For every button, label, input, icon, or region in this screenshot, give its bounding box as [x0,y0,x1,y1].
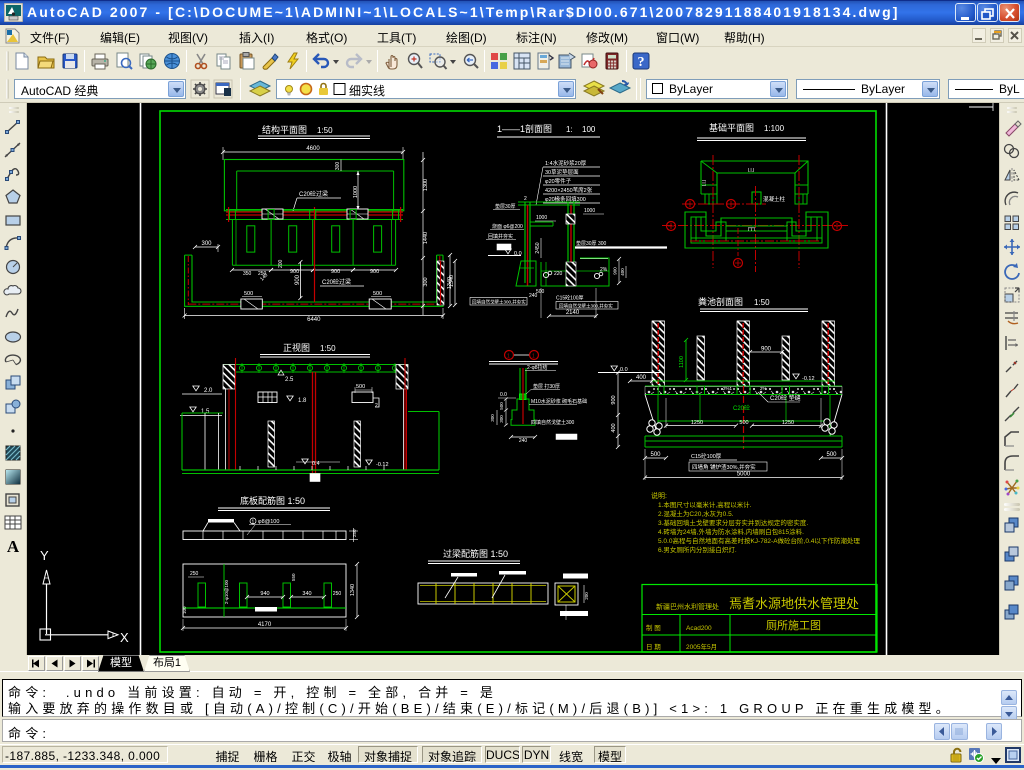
svg-text:M10水泥砂浆 砌毛石基础: M10水泥砂浆 砌毛石基础 [531,398,587,405]
svg-text:900: 900 [295,274,301,285]
svg-text:C20砼过梁: C20砼过梁 [322,278,351,286]
svg-text:100: 100 [582,125,596,134]
svg-text:250: 250 [352,529,357,537]
svg-text:1:: 1: [566,125,573,134]
svg-text:2005年5月: 2005年5月 [686,642,717,651]
svg-text:φ20零件子: φ20零件子 [545,177,572,185]
svg-text:回填自然戈壁土300,并夯实: 回填自然戈壁土300,并夯实 [559,303,613,310]
svg-text:Acad200: Acad200 [686,625,712,632]
svg-text:200: 200 [584,592,589,600]
svg-text:4170: 4170 [258,622,272,628]
svg-text:0.0: 0.0 [500,392,507,398]
svg-text:1:50: 1:50 [317,126,333,135]
svg-text:垫层30厚 300: 垫层30厚 300 [576,240,607,247]
svg-text:350: 350 [243,271,252,277]
svg-text:1.5: 1.5 [201,409,210,415]
svg-text:1000: 1000 [353,186,359,198]
svg-text:Y: Y [40,548,49,563]
svg-text:6440: 6440 [307,317,321,323]
svg-text:1:4水泥砂浆20厚: 1:4水泥砂浆20厚 [545,159,587,167]
svg-text:2.0: 2.0 [204,388,213,394]
svg-text:1300: 1300 [423,179,429,191]
svg-text:240: 240 [529,293,538,299]
svg-text:基础平面图: 基础平面图 [709,122,754,133]
svg-text:0.0: 0.0 [514,251,522,257]
svg-text:900: 900 [290,269,299,275]
svg-text:厕所施工图: 厕所施工图 [766,619,821,632]
svg-text:制 图: 制 图 [646,623,661,632]
svg-text:900: 900 [613,267,618,275]
svg-text:结构平面图: 结构平面图 [262,124,307,135]
svg-text:240: 240 [519,438,528,444]
svg-text:2-φ10@100: 2-φ10@100 [224,580,229,604]
svg-text:-0.12: -0.12 [802,376,815,382]
svg-text:垫层30厚: 垫层30厚 [495,203,516,210]
svg-text:300: 300 [201,241,212,247]
svg-text:900: 900 [370,269,379,275]
svg-text:250: 250 [190,571,199,577]
svg-text:2140: 2140 [566,310,580,316]
svg-text:C20砼: C20砼 [733,404,750,412]
svg-text:4200×2450苇席2张: 4200×2450苇席2张 [545,186,593,194]
svg-text:1440: 1440 [423,232,429,244]
svg-text:A: A [7,537,20,556]
svg-text:四墙角 铺炉渣30%,并夯实: 四墙角 铺炉渣30%,并夯实 [692,463,756,471]
svg-text:100: 100 [182,606,187,614]
svg-text:1: 1 [507,354,510,360]
svg-text:2: 2 [524,196,527,202]
svg-text:6.男女厕所内分别接白炽灯.: 6.男女厕所内分别接白炽灯. [658,545,737,554]
svg-text:500: 500 [499,402,504,410]
svg-text:1100: 1100 [679,356,685,368]
svg-text:300: 300 [423,277,429,286]
svg-text:垫层 打30厚: 垫层 打30厚 [533,383,560,390]
svg-text:1250: 1250 [691,420,703,426]
svg-text:1340: 1340 [447,277,453,289]
svg-text:1:50: 1:50 [754,298,770,307]
svg-text:500: 500 [739,420,748,426]
svg-text:说明:: 说明: [651,491,667,500]
svg-text:300: 300 [335,162,341,171]
svg-text:300: 300 [490,414,495,422]
svg-text:2.5: 2.5 [285,377,294,383]
svg-text:烧面 φ6@200: 烧面 φ6@200 [492,223,523,230]
svg-text:底板配筋图 1:50: 底板配筋图 1:50 [240,495,305,506]
svg-text:1.本图尺寸以毫米计,高程以米计.: 1.本图尺寸以毫米计,高程以米计. [658,500,752,509]
svg-text:1.8: 1.8 [298,398,307,404]
svg-text:500: 500 [356,384,365,390]
svg-text:2: 2 [375,403,378,409]
svg-text:4600: 4600 [306,146,320,152]
svg-text:500: 500 [244,291,253,297]
svg-text:四填自然戈壁土300: 四填自然戈壁土300 [531,419,575,426]
svg-text:?: ? [638,55,645,70]
svg-text:φ8@100: φ8@100 [258,519,279,525]
svg-text:2.混凝土为C20,水灰为0.5.: 2.混凝土为C20,水灰为0.5. [658,509,734,518]
svg-text:250: 250 [333,591,342,597]
svg-text:500: 500 [826,452,837,458]
svg-text:粪池剖面图: 粪池剖面图 [698,296,743,307]
svg-text:400: 400 [611,423,617,432]
svg-text:2%: 2% [600,267,608,273]
svg-text:焉耆水源地供水管理处: 焉耆水源地供水管理处 [729,596,859,611]
svg-text:1:100: 1:100 [764,124,785,133]
svg-text:200: 200 [278,259,284,268]
svg-text:C15砼100厚: C15砼100厚 [691,452,722,460]
svg-text:过梁配筋图 1:50: 过梁配筋图 1:50 [443,548,508,559]
svg-text:3.基础回填土戈壁要求分层夯实并到达规定的密实度.: 3.基础回填土戈壁要求分层夯实并到达规定的密实度. [658,518,808,527]
svg-text:C15砼100厚: C15砼100厚 [556,295,584,302]
svg-text:1000: 1000 [584,208,595,214]
svg-text:220: 220 [554,271,563,277]
svg-text:400: 400 [620,268,625,276]
svg-text:340: 340 [302,591,311,597]
svg-text:混凝土柱: 混凝土柱 [763,195,786,203]
svg-text:X: X [120,630,129,645]
svg-text:日 期: 日 期 [646,643,661,651]
svg-text:C20砼过梁: C20砼过梁 [299,190,328,198]
svg-text:2450: 2450 [535,242,541,253]
svg-text:1: 1 [532,354,535,360]
svg-text:940: 940 [260,591,269,597]
svg-text:2%: 2% [760,386,767,391]
svg-text:500: 500 [373,291,382,297]
svg-text:l"l"l: l"l"l [748,227,755,233]
svg-text:4.砖墙为24墙,外墙为防水涂料,内墙刷白包815涂料.: 4.砖墙为24墙,外墙为防水涂料,内墙刷白包815涂料. [658,527,804,536]
svg-text:正视图: 正视图 [283,342,310,353]
svg-text:C20砼 垫缝: C20砼 垫缝 [770,394,801,402]
svg-text:5000: 5000 [737,472,751,478]
svg-text:回填自然戈壁土300,并夯实: 回填自然戈壁土300,并夯实 [472,299,526,306]
svg-text:l.l.l: l.l.l [702,180,708,186]
svg-text:1——1剖面图: 1——1剖面图 [497,123,552,134]
svg-text:1:50: 1:50 [320,344,336,353]
svg-text:400: 400 [636,375,647,381]
svg-text:900: 900 [611,395,617,404]
svg-text:900: 900 [331,269,340,275]
svg-text:新疆巴州水利管理处: 新疆巴州水利管理处 [656,602,719,611]
svg-text:2%1: 2%1 [723,386,733,391]
svg-text:l.l.l: l.l.l [748,168,754,174]
svg-text:300: 300 [499,415,504,423]
svg-text:1000: 1000 [536,215,547,221]
svg-text:550: 550 [291,573,296,581]
svg-text:1340: 1340 [350,584,356,596]
svg-text:2-φ8拉结: 2-φ8拉结 [527,364,547,371]
svg-text:1250: 1250 [782,420,794,426]
svg-text:5.0.0高程与自然地面有高差时按KJ-782-A做砼台阶,: 5.0.0高程与自然地面有高差时按KJ-782-A做砼台阶,0.4以下作防潮处理 [658,536,860,545]
svg-text:-0.12: -0.12 [376,462,389,468]
svg-text:500: 500 [650,452,661,458]
svg-text:30草泥垫层面: 30草泥垫层面 [545,168,579,176]
svg-text:回填并夯实: 回填并夯实 [488,233,513,240]
svg-text:900: 900 [761,347,772,353]
